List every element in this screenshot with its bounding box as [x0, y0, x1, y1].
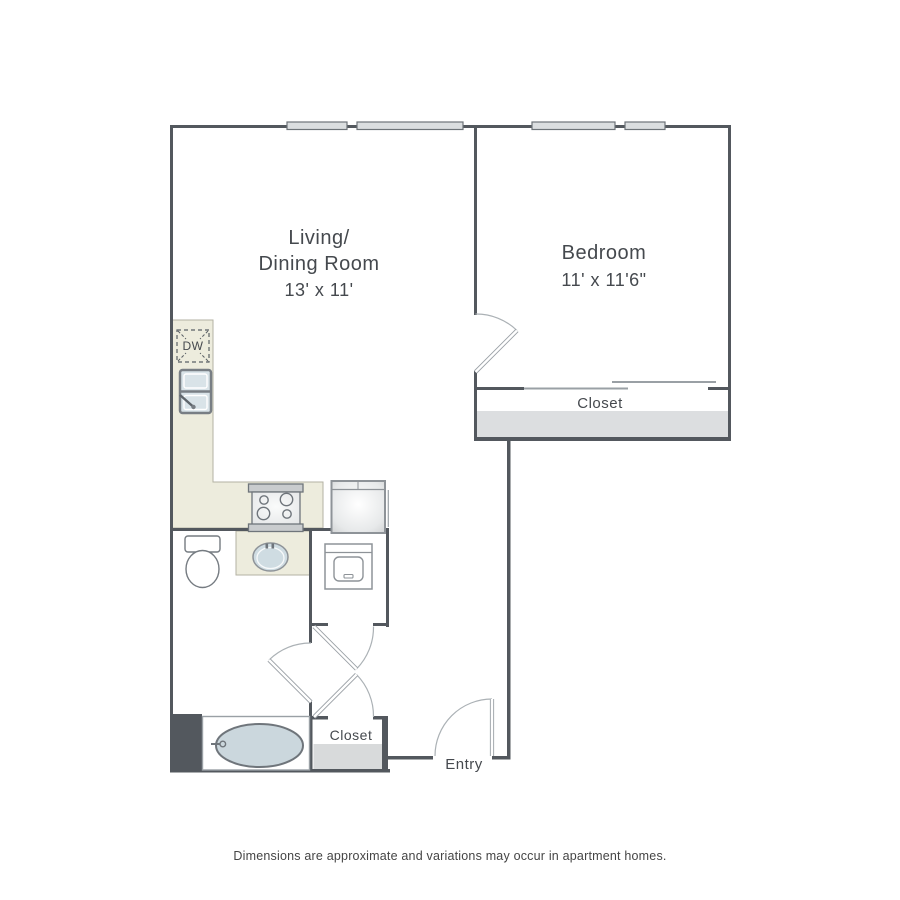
wall-bottom-mid: [388, 756, 433, 760]
window-3: [532, 122, 615, 130]
toilet-tank: [185, 536, 220, 552]
wall-laundry-right: [386, 528, 389, 627]
wall-living-bedroom-upper: [474, 125, 477, 315]
bathtub-basin: [216, 724, 303, 767]
toilet: [185, 536, 220, 588]
laundry-closet-door: [314, 627, 374, 670]
bathtub: [203, 717, 310, 771]
entry-closet-label: Closet: [330, 727, 373, 743]
wall-entry-stub: [492, 756, 511, 760]
entry-closet-door: [314, 675, 374, 718]
stove: [249, 484, 304, 532]
bedroom-label: Bedroom: [562, 242, 647, 264]
entry-closet-door-arc: [357, 675, 374, 718]
bathroom-door-arc: [269, 643, 311, 660]
refrigerator: [332, 481, 389, 533]
bathtub-faucet-head: [220, 741, 226, 747]
living-room-label-line1: Living/: [288, 227, 349, 249]
bathroom-door: [269, 643, 311, 702]
tub-end-block: [170, 714, 202, 772]
bedroom-door: [476, 314, 518, 372]
wall-bedroom-closet-stub-right: [708, 387, 731, 390]
floor-plan-drawing: Living/ Dining Room 13' x 11' Bedroom 11…: [0, 0, 900, 900]
living-room-dimensions: 13' x 11': [284, 280, 353, 300]
toilet-bowl: [186, 551, 219, 588]
floor-plan-canvas: Living/ Dining Room 13' x 11' Bedroom 11…: [0, 0, 900, 900]
wall-bedroom-closet-left: [474, 387, 477, 440]
bedroom-closet-sliding-doors: [524, 382, 716, 389]
wall-left: [170, 125, 173, 772]
washer-dryer: [325, 544, 372, 589]
entry-closet-shelf: [314, 744, 383, 769]
laundry-door-leaf-inner: [314, 627, 357, 670]
disclaimer-text: Dimensions are approximate and variation…: [0, 849, 900, 863]
bathroom-door-leaf-inner: [269, 660, 311, 702]
wall-bedroom-closet-stub-left: [474, 387, 524, 390]
wall-laundry-stub-right: [373, 623, 389, 626]
kitchen-sink: [180, 370, 211, 413]
wall-entry-closet-right: [382, 716, 388, 772]
washer-body: [325, 544, 372, 589]
dishwasher-label: DW: [183, 339, 204, 353]
entry-door-arc: [435, 699, 492, 756]
bedroom-closet-shelf: [477, 411, 728, 437]
walls: [170, 125, 731, 773]
window-1: [287, 122, 347, 130]
bedroom-door-leaf-inner: [476, 331, 518, 373]
vanity-faucet-icon: [266, 544, 269, 549]
stove-back-panel: [249, 484, 304, 492]
wall-bedroom-closet-bottom: [474, 437, 731, 441]
entry-door: [435, 699, 492, 756]
vanity-sink: [253, 543, 288, 571]
window-2: [357, 122, 463, 130]
stove-front-edge: [249, 524, 304, 532]
vanity-faucet-handle: [272, 544, 275, 549]
bedroom-dimensions: 11' x 11'6": [561, 270, 646, 290]
kitchen-faucet-head: [191, 405, 195, 409]
bedroom-closet-label: Closet: [577, 395, 623, 412]
laundry-door-arc: [357, 627, 374, 670]
entry-closet-door-leaf-inner: [314, 675, 357, 718]
wall-right-upper: [728, 125, 731, 441]
wall-hall-right: [507, 437, 511, 759]
living-room-label-line2: Dining Room: [258, 253, 379, 275]
bedroom-door-arc: [476, 314, 518, 331]
wall-laundry-stub-left: [309, 623, 328, 626]
entry-label: Entry: [445, 756, 483, 773]
window-4: [625, 122, 665, 130]
